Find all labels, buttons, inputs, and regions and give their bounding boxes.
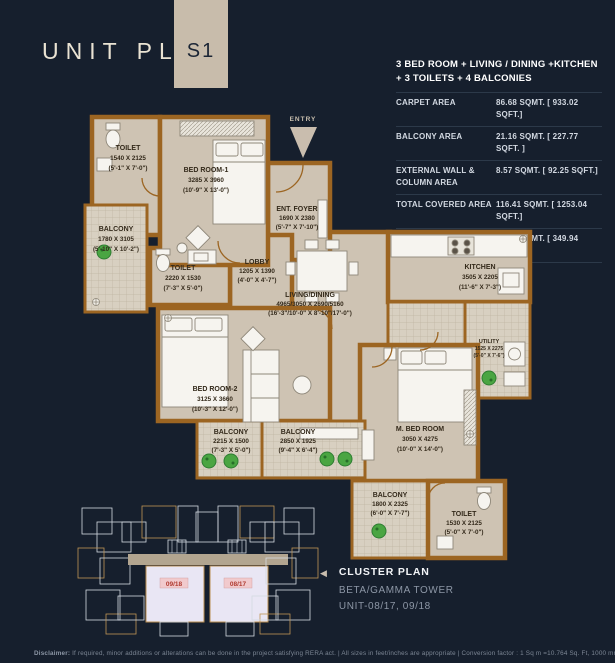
room-label-balcony4: BALCONY	[281, 429, 316, 436]
room-dim: 3050 X 4275	[402, 436, 438, 443]
room-label-master-bedroom: M. BED ROOM	[396, 426, 444, 433]
room-dim: 2220 X 1530	[165, 275, 201, 282]
disclaimer-text: If required, minor additions or alterati…	[72, 650, 615, 657]
cluster-plan-title: CLUSTER PLAN	[339, 566, 454, 578]
room-label-balcony3: BALCONY	[214, 429, 249, 436]
room-label-balcony5: BALCONY	[373, 492, 408, 499]
room-dim: 1525 X 2275	[475, 346, 504, 352]
floor-plan-drawing: ENTRY TOILET 1540 X 2125 (5'-1" X 7'-0")…	[0, 0, 615, 663]
entry-arrow-icon	[290, 127, 317, 158]
room-dim: (16'-3"/10'-0" X 8'-10"/17'-0")	[268, 310, 352, 317]
room-label-toilet2: TOILET	[171, 265, 196, 272]
room-dim: 1690 X 2380	[279, 215, 315, 222]
room-dim: 1780 X 3105	[98, 236, 134, 243]
cluster-corridor	[128, 554, 288, 565]
room-dim: (5'-0" X 7'-0")	[444, 529, 483, 536]
room-label-bedroom2: BED ROOM-2	[193, 386, 238, 393]
room-dim: 1530 X 2125	[446, 520, 482, 527]
cluster-plan-arrow-icon: ◀	[320, 566, 327, 615]
room-label-kitchen: KITCHEN	[464, 264, 495, 271]
room-dim: 1800 X 2325	[372, 501, 408, 508]
room-dim: 1540 X 2125	[110, 155, 146, 162]
room-dim: 3505 X 2205	[462, 274, 498, 281]
disclaimer-prefix: Disclaimer:	[34, 650, 70, 657]
room-label-living-dining: LIVING/DINING	[285, 292, 335, 299]
entry-marker: ENTRY	[290, 116, 317, 158]
room-label-balcony-left: BALCONY	[99, 226, 134, 233]
rooms-and-walls	[85, 117, 530, 558]
unit-number-label: 08/17	[230, 581, 247, 588]
room-dim: 4965/3050 X 2690/5160	[276, 301, 344, 308]
room-dim: (5'-10" X 10'-2")	[93, 246, 139, 253]
room-label-ent-foyer: ENT. FOYER	[276, 206, 317, 213]
room-dim: 2850 X 1925	[280, 438, 316, 445]
room-dim: (10'-3" X 12'-0")	[192, 406, 238, 413]
room-label-toilet3: TOILET	[452, 511, 477, 518]
highlighted-unit-09-18	[146, 566, 204, 622]
unit-number-label: 09/18	[166, 581, 183, 588]
room-dim: 2215 X 1500	[213, 438, 249, 445]
disclaimer: Disclaimer: If required, minor additions…	[34, 650, 600, 657]
room-label-lobby: LOBBY	[245, 259, 270, 266]
unit-numbers: UNIT-08/17, 09/18	[339, 599, 454, 615]
room-label-utility: UTILITY	[479, 339, 500, 345]
room-dim: (7'-3" X 5'-0")	[211, 447, 250, 454]
room-dim: (10'-0" X 14'-0")	[397, 446, 443, 453]
room-dim: (9'-4" X 6'-4")	[278, 447, 317, 454]
room-dim: 3285 X 3960	[188, 177, 224, 184]
room-dim: (10'-9" X 13'-0")	[183, 187, 229, 194]
room-dim: (5'-1" X 7'-0")	[108, 165, 147, 172]
room-dim: (5'-0" X 7'-6")	[473, 353, 504, 359]
room-dim: (4'-0" X 4'-7")	[237, 277, 276, 284]
entry-label: ENTRY	[290, 116, 317, 123]
room-dim: 3125 X 3660	[197, 396, 233, 403]
room-label-bedroom1: BED ROOM-1	[184, 167, 229, 174]
room-dim: (11'-6" X 7'-3")	[459, 284, 501, 291]
room-dim: (5'-7" X 7'-10")	[276, 224, 319, 231]
room-dim: (7'-3" X 5'-0")	[163, 285, 202, 292]
room-dim: 1205 X 1390	[239, 268, 275, 275]
room-dim: (6'-0" X 7'-7")	[370, 510, 409, 517]
cluster-plan-caption: ◀ CLUSTER PLAN BETA/GAMMA TOWER UNIT-08/…	[320, 566, 454, 615]
tower-name: BETA/GAMMA TOWER	[339, 583, 454, 599]
cluster-plan: 09/18 08/17	[78, 506, 318, 636]
room-label-toilet1: TOILET	[116, 145, 141, 152]
highlighted-unit-08-17	[210, 566, 268, 622]
